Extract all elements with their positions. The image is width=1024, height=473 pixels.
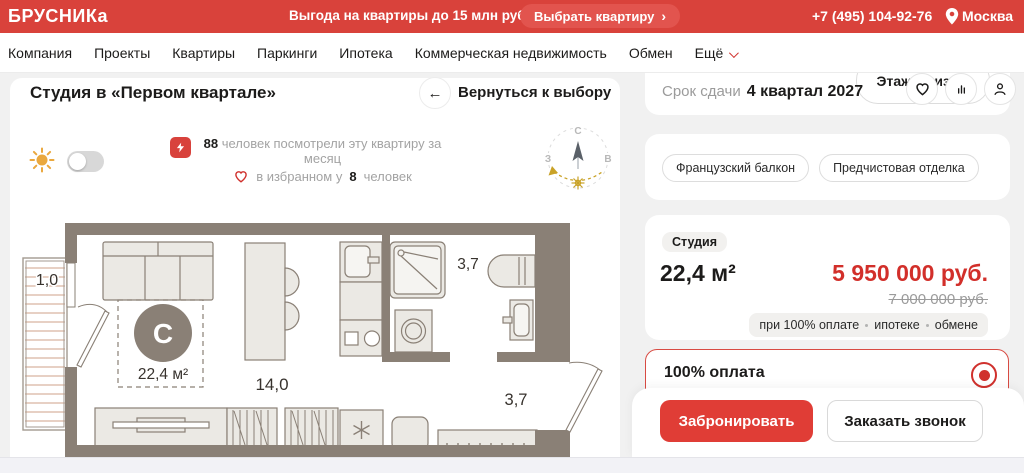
compass-north-label: С	[574, 126, 581, 137]
book-button[interactable]: Забронировать	[660, 400, 813, 442]
views-count: 88	[204, 136, 218, 151]
location-pin-icon	[945, 8, 959, 26]
balcony-area-label: 1,0	[36, 272, 58, 289]
page: БРУСНИКа Выгода на квартиры до 15 млн ру…	[0, 0, 1024, 473]
bottom-strip	[0, 457, 1024, 473]
apartment-type-badge: Студия	[662, 232, 727, 252]
views-text-2: месяц	[304, 151, 341, 166]
total-area-label: 22,4 м²	[138, 366, 188, 383]
entrance-door	[566, 362, 602, 432]
payment-option-label: 100% оплата	[664, 364, 765, 382]
bar-chart-icon	[953, 81, 970, 98]
favorites-count: 8	[349, 169, 356, 184]
select-apartment-label: Выбрать квартиру	[534, 9, 654, 24]
page-title: Студия в «Первом квартале»	[30, 83, 276, 103]
plan-logo-letter: С	[153, 318, 173, 349]
sunlight-toggle[interactable]	[67, 151, 104, 172]
feature-tag: Французский балкон	[662, 154, 809, 182]
brand-logo[interactable]: БРУСНИКа	[8, 6, 108, 27]
deadline-label: Срок сдачи	[662, 83, 741, 100]
nav-item-projects[interactable]: Проекты	[94, 45, 150, 61]
toggle-knob	[69, 153, 86, 170]
payment-condition: ипотеке	[874, 318, 920, 332]
payment-conditions: при 100% оплате ипотеке обмене	[749, 313, 988, 337]
dot-separator	[865, 324, 868, 327]
nav-item-company[interactable]: Компания	[8, 45, 72, 61]
stats-button[interactable]	[945, 73, 977, 105]
feature-tag: Предчистовая отделка	[819, 154, 979, 182]
deadline-row: Срок сдачи4 квартал 2027	[662, 83, 863, 101]
floor-plan: С 1,0 3,7 3,7 14,0 22,4 м²	[20, 222, 610, 457]
dot-separator	[926, 324, 929, 327]
favorites-text-2: человек	[364, 169, 412, 184]
back-to-selection-link[interactable]: Вернуться к выбору	[458, 84, 611, 101]
payment-radio[interactable]	[971, 362, 997, 388]
top-promo-bar: БРУСНИКа Выгода на квартиры до 15 млн ру…	[0, 0, 1024, 33]
main-nav: Компания Проекты Квартиры Паркинги Ипоте…	[0, 33, 1024, 73]
payment-condition: при 100% оплате	[759, 318, 859, 332]
nav-item-more[interactable]: Ещё	[695, 45, 737, 61]
features-card: Французский балкон Предчистовая отделка	[645, 134, 1010, 200]
compass-west-label: З	[545, 154, 551, 165]
apartment-old-price: 7 000 000 руб.	[889, 291, 989, 308]
views-counter: 88 человек посмотрели эту квартиру за ме…	[200, 136, 445, 166]
sun-icon	[28, 146, 56, 174]
chevron-down-icon	[729, 48, 739, 58]
favorites-button[interactable]	[906, 73, 938, 105]
back-button[interactable]: ←	[419, 77, 451, 109]
user-icon	[991, 80, 1009, 98]
profile-button[interactable]	[984, 73, 1016, 105]
hallway-area-label: 3,7	[505, 391, 528, 409]
lightning-icon	[174, 141, 187, 154]
payment-condition: обмене	[935, 318, 978, 332]
balcony-door	[77, 304, 109, 367]
bathroom-area-label: 3,7	[457, 256, 479, 273]
nav-item-parking[interactable]: Паркинги	[257, 45, 317, 61]
room-area-label: 14,0	[255, 375, 288, 394]
apartment-area: 22,4 м²	[660, 260, 736, 287]
heart-icon	[914, 81, 931, 97]
phone-link[interactable]: +7 (495) 104-92-76	[812, 8, 932, 24]
deadline-value: 4 квартал 2027	[747, 83, 863, 100]
promo-text: Выгода на квартиры до 15 млн руб.	[289, 8, 529, 23]
payment-radio-dot	[979, 370, 990, 381]
apartment-price: 5 950 000 руб.	[832, 260, 988, 287]
views-text: человек посмотрели эту квартиру за	[218, 136, 441, 151]
nav-item-mortgage[interactable]: Ипотека	[339, 45, 392, 61]
chevron-right-icon: ›	[661, 8, 666, 24]
nav-item-exchange[interactable]: Обмен	[629, 45, 673, 61]
favorites-counter: в избранном у 8 человек	[200, 169, 445, 184]
request-call-button[interactable]: Заказать звонок	[827, 400, 983, 442]
views-flash-badge	[170, 137, 191, 158]
arrow-left-icon: ←	[428, 85, 443, 102]
city-selector[interactable]: Москва	[962, 8, 1013, 24]
compass-widget: С З В	[542, 122, 614, 200]
favorites-text: в избранном у	[256, 169, 342, 184]
window	[67, 263, 75, 307]
nav-item-commercial[interactable]: Коммерческая недвижимость	[415, 45, 607, 61]
nav-item-apartments[interactable]: Квартиры	[172, 45, 235, 61]
compass-east-label: В	[604, 154, 611, 165]
heart-outline-icon	[233, 169, 249, 184]
nav-item-more-label: Ещё	[695, 45, 724, 61]
action-bar: Забронировать Заказать звонок	[632, 388, 1024, 457]
select-apartment-button[interactable]: Выбрать квартиру›	[520, 4, 680, 28]
